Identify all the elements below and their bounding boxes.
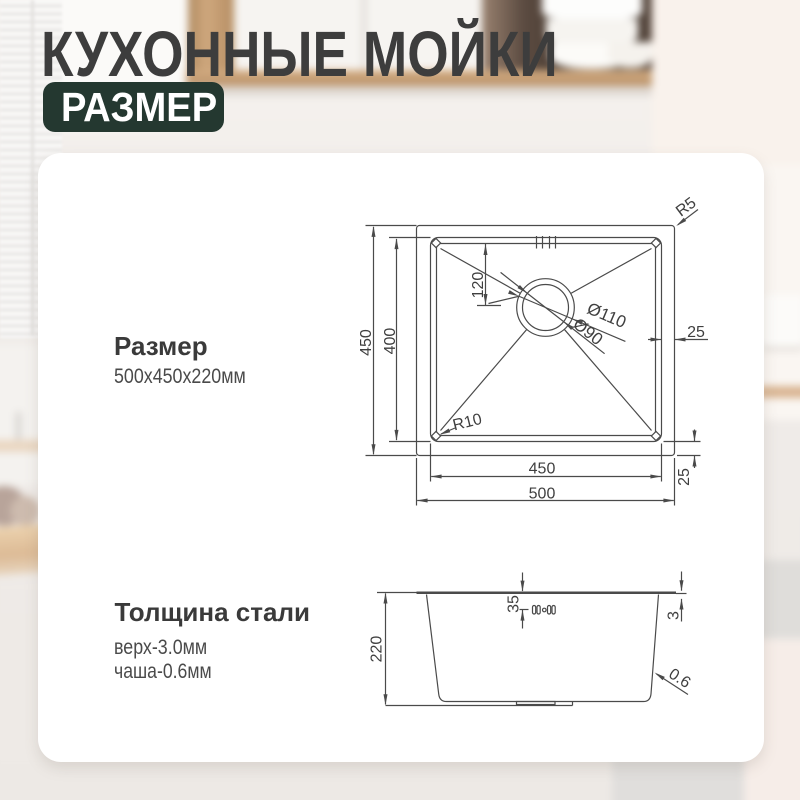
svg-text:25: 25 — [676, 468, 693, 486]
svg-text:120: 120 — [470, 272, 487, 299]
svg-text:500: 500 — [529, 486, 556, 503]
svg-text:R5: R5 — [673, 194, 700, 220]
svg-text:220: 220 — [369, 636, 386, 663]
svg-text:R10: R10 — [451, 411, 484, 435]
svg-text:450: 450 — [529, 461, 556, 478]
svg-text:25: 25 — [687, 324, 705, 341]
svg-text:3: 3 — [666, 611, 683, 620]
svg-text:450: 450 — [358, 329, 375, 356]
svg-text:35: 35 — [506, 595, 523, 613]
svg-text:400: 400 — [382, 328, 399, 355]
svg-text:0.6: 0.6 — [665, 666, 693, 692]
